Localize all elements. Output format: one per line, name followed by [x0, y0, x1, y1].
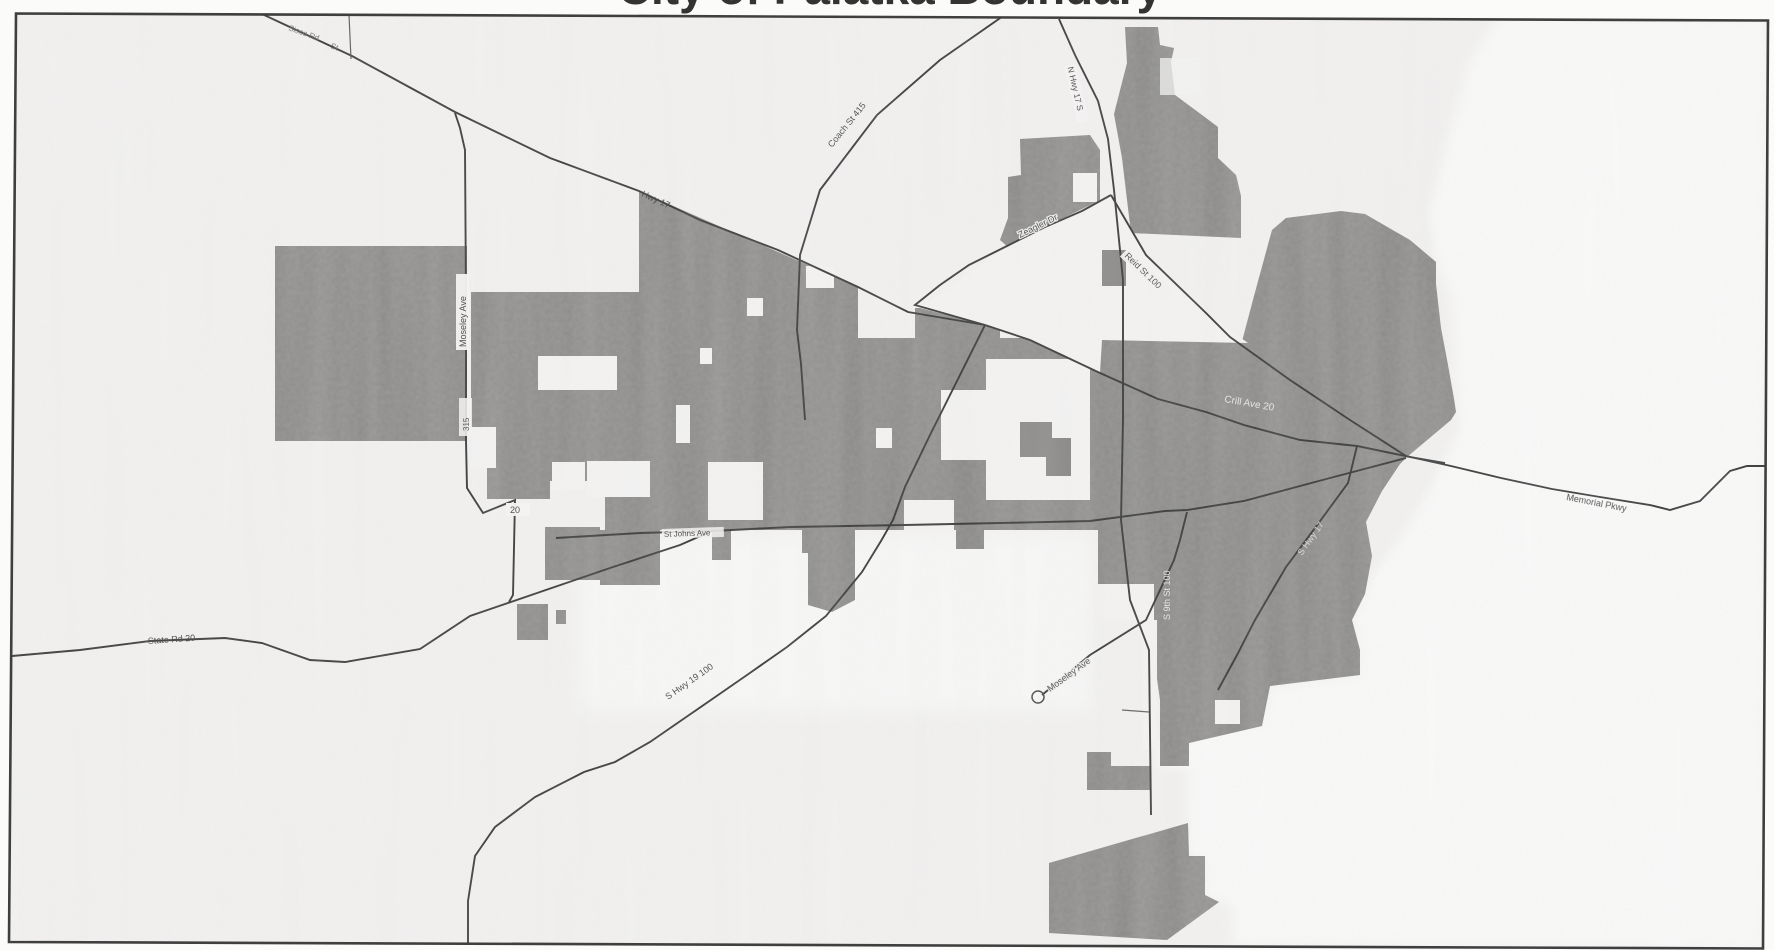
- svg-text:City of Palatka Boundary: City of Palatka Boundary: [618, 0, 1163, 14]
